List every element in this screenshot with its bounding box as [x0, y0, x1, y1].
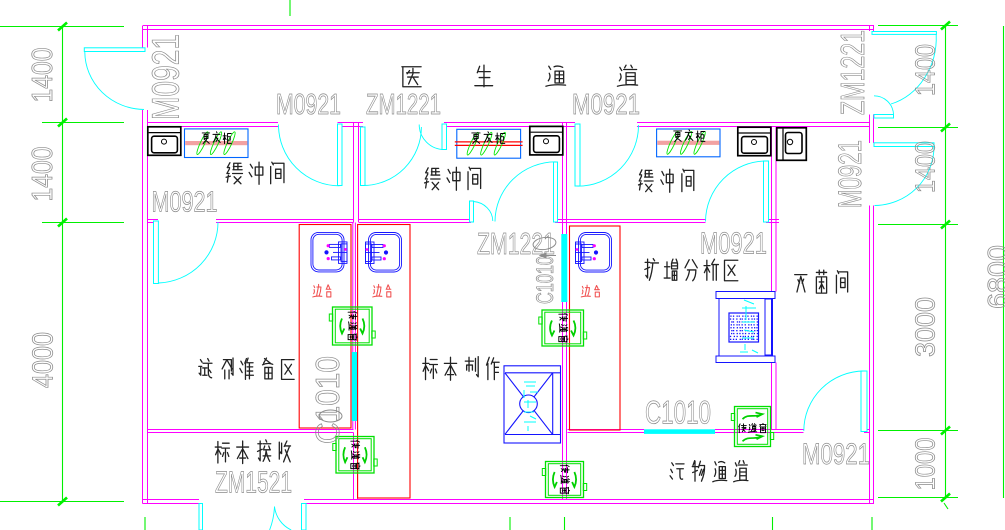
svg-text:6800: 6800 [982, 245, 1005, 309]
svg-text:3000: 3000 [910, 297, 941, 357]
svg-text:C1010: C1010 [532, 256, 559, 304]
svg-text:M0921: M0921 [146, 34, 188, 120]
svg-text:1400: 1400 [910, 44, 941, 96]
svg-text:ZM1221: ZM1221 [834, 30, 871, 115]
svg-text:M0921: M0921 [572, 89, 640, 121]
svg-text:M0921: M0921 [700, 226, 767, 261]
svg-text:M0921: M0921 [832, 140, 868, 208]
svg-text:ZM1521: ZM1521 [215, 464, 292, 499]
svg-text:M0921: M0921 [152, 187, 218, 219]
svg-text:M0921: M0921 [276, 89, 341, 121]
svg-text:C1010: C1010 [309, 356, 346, 444]
svg-text:C1010: C1010 [645, 395, 711, 431]
svg-text:1400: 1400 [27, 48, 59, 103]
svg-text:1400: 1400 [910, 141, 941, 193]
svg-text:1400: 1400 [27, 147, 59, 202]
svg-text:ZM1221: ZM1221 [366, 89, 441, 121]
svg-text:1000: 1000 [910, 438, 941, 491]
svg-text:4000: 4000 [28, 332, 60, 388]
svg-text:M0921: M0921 [802, 438, 870, 471]
